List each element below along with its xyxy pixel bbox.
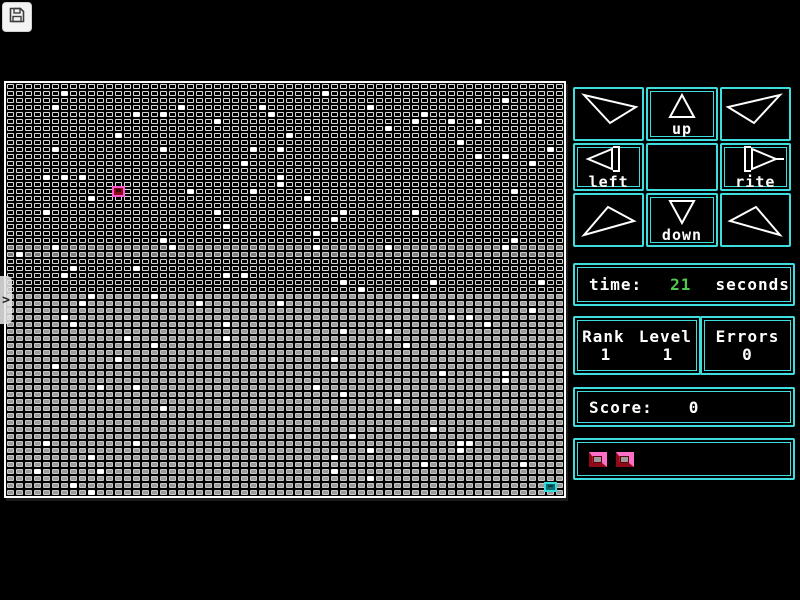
- grid-cell: [25, 280, 32, 285]
- grid-cell: [304, 490, 311, 495]
- grid-cell: [232, 329, 239, 334]
- grid-cell: [88, 294, 95, 299]
- grid-cell: [448, 175, 455, 180]
- grid-cell: [250, 175, 257, 180]
- grid-cell: [52, 175, 59, 180]
- grid-cell: [16, 161, 23, 166]
- grid-cell: [349, 434, 356, 439]
- grid-cell: [484, 329, 491, 334]
- grid-cell: [205, 469, 212, 474]
- dpad-down-left-button[interactable]: [573, 193, 644, 247]
- grid-cell: [133, 490, 140, 495]
- grid-cell: [124, 378, 131, 383]
- grid-cell: [304, 140, 311, 145]
- grid-cell: [349, 350, 356, 355]
- grid-cell: [322, 350, 329, 355]
- grid-cell: [394, 119, 401, 124]
- grid-cell: [196, 98, 203, 103]
- grid-cell: [349, 490, 356, 495]
- grid-cell: [187, 252, 194, 257]
- grid-cell: [79, 140, 86, 145]
- grid-cell: [61, 434, 68, 439]
- grid-cell: [520, 336, 527, 341]
- grid-cell: [79, 343, 86, 348]
- grid-cell: [439, 238, 446, 243]
- grid-cell: [232, 336, 239, 341]
- grid-cell: [214, 399, 221, 404]
- grid-cell: [250, 119, 257, 124]
- save-button[interactable]: [2, 2, 32, 32]
- grid-cell: [295, 378, 302, 383]
- grid-cell: [403, 147, 410, 152]
- grid-cell: [178, 350, 185, 355]
- grid-cell: [133, 357, 140, 362]
- grid-cell: [520, 203, 527, 208]
- grid-cell: [376, 427, 383, 432]
- grid-cell: [169, 322, 176, 327]
- grid-cell: [34, 252, 41, 257]
- grid-cell: [232, 168, 239, 173]
- dpad-up-button[interactable]: up: [646, 87, 717, 141]
- grid-cell: [115, 154, 122, 159]
- grid-cell: [286, 392, 293, 397]
- grid-cell: [106, 105, 113, 110]
- grid-cell: [403, 252, 410, 257]
- grid-cell: [502, 322, 509, 327]
- grid-cell: [313, 364, 320, 369]
- grid-cell: [295, 168, 302, 173]
- grid-cell: [196, 322, 203, 327]
- grid-cell: [412, 252, 419, 257]
- grid-cell: [214, 301, 221, 306]
- grid-cell: [250, 224, 257, 229]
- grid-cell: [493, 119, 500, 124]
- grid-cell: [403, 189, 410, 194]
- grid-cell: [187, 259, 194, 264]
- grid-cell: [340, 91, 347, 96]
- grid-cell: [160, 210, 167, 215]
- grid-cell: [160, 182, 167, 187]
- grid-cell: [43, 399, 50, 404]
- grid-cell: [394, 105, 401, 110]
- grid-cell: [106, 273, 113, 278]
- dpad-up-left-button[interactable]: [573, 87, 644, 141]
- dpad-up-right-button[interactable]: [720, 87, 791, 141]
- grid-cell: [358, 147, 365, 152]
- grid-cell: [304, 273, 311, 278]
- grid-cell: [25, 308, 32, 313]
- grid-cell: [331, 140, 338, 145]
- grid-cell: [79, 266, 86, 271]
- grid-cell: [160, 301, 167, 306]
- dpad-left-button[interactable]: left: [573, 143, 644, 191]
- grid-cell: [115, 406, 122, 411]
- grid-cell: [106, 427, 113, 432]
- grid-cell: [259, 294, 266, 299]
- grid-cell: [61, 91, 68, 96]
- grid-cell: [430, 364, 437, 369]
- grid-cell: [277, 84, 284, 89]
- grid-cell: [394, 154, 401, 159]
- grid-cell: [331, 231, 338, 236]
- grid-cell: [295, 308, 302, 313]
- grid-cell: [25, 147, 32, 152]
- grid-cell: [529, 287, 536, 292]
- grid-cell: [304, 126, 311, 131]
- grid-cell: [367, 259, 374, 264]
- grid-cell: [205, 140, 212, 145]
- grid-cell: [61, 392, 68, 397]
- grid-cell: [547, 119, 554, 124]
- grid-cell: [7, 259, 14, 264]
- grid-cell: [394, 343, 401, 348]
- grid-cell: [169, 448, 176, 453]
- grid-cell: [286, 455, 293, 460]
- grid-cell: [205, 98, 212, 103]
- grid-cell: [520, 98, 527, 103]
- grid-cell: [142, 406, 149, 411]
- grid-cell: [196, 385, 203, 390]
- grid-cell: [205, 343, 212, 348]
- grid-cell: [232, 112, 239, 117]
- grid-cell: [403, 119, 410, 124]
- grid-cell: [367, 476, 374, 481]
- grid-cell: [43, 168, 50, 173]
- grid-cell: [268, 210, 275, 215]
- grid-cell: [25, 84, 32, 89]
- grid-cell: [520, 252, 527, 257]
- grid-cell: [520, 448, 527, 453]
- grid-cell: [259, 119, 266, 124]
- grid-cell: [511, 448, 518, 453]
- grid-cell: [196, 231, 203, 236]
- grid-cell: [358, 196, 365, 201]
- grid-cell: [124, 189, 131, 194]
- grid-cell: [439, 378, 446, 383]
- grid-cell: [457, 441, 464, 446]
- grid-cell: [88, 273, 95, 278]
- grid-cell: [439, 112, 446, 117]
- grid-cell: [142, 308, 149, 313]
- grid-cell: [448, 259, 455, 264]
- grid-cell: [547, 175, 554, 180]
- grid-cell: [295, 98, 302, 103]
- grid-cell: [43, 392, 50, 397]
- grid-cell: [430, 301, 437, 306]
- grid-cell: [70, 420, 77, 425]
- dpad-down-right-button[interactable]: [720, 193, 791, 247]
- grid-cell: [43, 182, 50, 187]
- grid-cell: [448, 357, 455, 362]
- grid-cell: [187, 294, 194, 299]
- grid-cell: [439, 273, 446, 278]
- grid-cell: [511, 399, 518, 404]
- grid-cell: [232, 427, 239, 432]
- grid-cell: [97, 147, 104, 152]
- grid-cell: [430, 336, 437, 341]
- grid-cell: [250, 98, 257, 103]
- grid-cell: [538, 462, 545, 467]
- grid-cell: [277, 476, 284, 481]
- grid-cell: [475, 112, 482, 117]
- game-screen: { "colors": { "accent": "#3fdede", "text…: [0, 0, 800, 600]
- grid-cell: [304, 420, 311, 425]
- grid-cell: [97, 154, 104, 159]
- grid-cell: [322, 287, 329, 292]
- grid-cell: [385, 406, 392, 411]
- grid-cell: [331, 287, 338, 292]
- grid-cell: [466, 161, 473, 166]
- grid-cell: [232, 91, 239, 96]
- grid-cell: [169, 427, 176, 432]
- grid-cell: [403, 133, 410, 138]
- grid-cell: [34, 399, 41, 404]
- grid-cell: [277, 105, 284, 110]
- grid-cell: [520, 154, 527, 159]
- grid-cell: [223, 350, 230, 355]
- grid-cell: [385, 287, 392, 292]
- grid-cell: [34, 385, 41, 390]
- grid-cell: [322, 147, 329, 152]
- grid-cell: [394, 147, 401, 152]
- grid-cell: [358, 182, 365, 187]
- grid-cell: [97, 238, 104, 243]
- grid-cell: [97, 371, 104, 376]
- grid-cell: [466, 490, 473, 495]
- grid-cell: [205, 266, 212, 271]
- grid-cell: [16, 189, 23, 194]
- grid-cell: [268, 469, 275, 474]
- grid-cell: [205, 287, 212, 292]
- grid-cell: [16, 105, 23, 110]
- grid-cell: [313, 476, 320, 481]
- grid-cell: [88, 441, 95, 446]
- grid-cell: [61, 483, 68, 488]
- grid-cell: [70, 140, 77, 145]
- grid-cell: [268, 196, 275, 201]
- grid-cell: [520, 168, 527, 173]
- grid-cell: [97, 315, 104, 320]
- grid-cell: [223, 413, 230, 418]
- grid-cell: [142, 490, 149, 495]
- grid-cell: [547, 161, 554, 166]
- grid-cell: [358, 364, 365, 369]
- grid-cell: [538, 455, 545, 460]
- grid-cell: [70, 448, 77, 453]
- grid-cell: [97, 329, 104, 334]
- grid-cell: [151, 287, 158, 292]
- grid-cell: [304, 434, 311, 439]
- grid-cell: [304, 315, 311, 320]
- grid-cell: [367, 105, 374, 110]
- grid-cell: [52, 364, 59, 369]
- grid-cell: [205, 371, 212, 376]
- grid-cell: [556, 406, 563, 411]
- grid-cell: [241, 203, 248, 208]
- grid-cell: [16, 301, 23, 306]
- grid-cell: [421, 434, 428, 439]
- grid-cell: [169, 441, 176, 446]
- grid-cell: [475, 350, 482, 355]
- grid-cell: [556, 315, 563, 320]
- grid-cell: [187, 140, 194, 145]
- grid-cell: [439, 371, 446, 376]
- grid-cell: [259, 483, 266, 488]
- grid-cell: [52, 133, 59, 138]
- grid-cell: [466, 217, 473, 222]
- grid-cell: [466, 196, 473, 201]
- grid-cell: [160, 476, 167, 481]
- grid-cell: [241, 378, 248, 383]
- sidebar-expand-tab[interactable]: >: [0, 276, 12, 324]
- grid-cell: [430, 385, 437, 390]
- grid-cell: [169, 392, 176, 397]
- dpad-down-button[interactable]: down: [646, 193, 717, 247]
- grid-cell: [457, 147, 464, 152]
- grid-cell: [412, 273, 419, 278]
- grid-cell: [295, 315, 302, 320]
- grid-cell: [403, 322, 410, 327]
- grid-cell: [205, 273, 212, 278]
- grid-cell: [484, 455, 491, 460]
- grid-cell: [169, 84, 176, 89]
- grid-cell: [106, 413, 113, 418]
- grid-cell: [106, 280, 113, 285]
- grid-cell: [448, 322, 455, 327]
- grid-cell: [223, 490, 230, 495]
- grid-cell: [169, 168, 176, 173]
- grid-cell: [7, 245, 14, 250]
- grid-cell: [403, 273, 410, 278]
- level-label: Level: [639, 328, 692, 346]
- grid-cell: [331, 420, 338, 425]
- grid-cell: [286, 434, 293, 439]
- grid-cell: [133, 406, 140, 411]
- grid-cell: [412, 189, 419, 194]
- grid-cell: [214, 476, 221, 481]
- grid-cell: [358, 245, 365, 250]
- grid-cell: [70, 308, 77, 313]
- grid-cell: [52, 196, 59, 201]
- grid-cell: [313, 203, 320, 208]
- grid-cell: [331, 406, 338, 411]
- grid-cell: [502, 140, 509, 145]
- grid-cell: [313, 413, 320, 418]
- grid-cell: [349, 161, 356, 166]
- grid-cell: [367, 168, 374, 173]
- grid-cell: [205, 322, 212, 327]
- grid-cell: [412, 84, 419, 89]
- grid-cell: [151, 357, 158, 362]
- grid-cell: [25, 161, 32, 166]
- grid-cell: [178, 399, 185, 404]
- grid-cell: [61, 406, 68, 411]
- grid-cell: [142, 392, 149, 397]
- grid-cell: [169, 98, 176, 103]
- grid-cell: [349, 238, 356, 243]
- grid-cell: [34, 189, 41, 194]
- grid-cell: [520, 294, 527, 299]
- grid-cell: [385, 448, 392, 453]
- grid-cell: [43, 476, 50, 481]
- grid-cell: [106, 476, 113, 481]
- grid-cell: [547, 210, 554, 215]
- dpad-right-button[interactable]: rite: [720, 143, 791, 191]
- grid-cell: [529, 476, 536, 481]
- grid-cell: [115, 175, 122, 180]
- grid-cell: [115, 343, 122, 348]
- grid-cell: [484, 490, 491, 495]
- grid-cell: [259, 112, 266, 117]
- grid-cell: [160, 112, 167, 117]
- grid-cell: [448, 462, 455, 467]
- grid-cell: [259, 273, 266, 278]
- grid-cell: [16, 175, 23, 180]
- grid-cell: [7, 399, 14, 404]
- grid-cell: [457, 154, 464, 159]
- grid-cell: [16, 259, 23, 264]
- grid-cell: [538, 224, 545, 229]
- grid-cell: [250, 231, 257, 236]
- grid-cell: [241, 224, 248, 229]
- grid-cell: [421, 119, 428, 124]
- grid-cell: [25, 168, 32, 173]
- grid-cell: [205, 280, 212, 285]
- grid-cell: [439, 126, 446, 131]
- grid-cell: [547, 238, 554, 243]
- grid-cell: [178, 175, 185, 180]
- grid-cell: [547, 280, 554, 285]
- grid-cell: [439, 280, 446, 285]
- grid-cell: [367, 427, 374, 432]
- grid-cell: [97, 483, 104, 488]
- grid-cell: [16, 455, 23, 460]
- grid-cell: [493, 434, 500, 439]
- grid-cell: [358, 371, 365, 376]
- grid-cell: [358, 469, 365, 474]
- grid-cell: [412, 399, 419, 404]
- grid-cell: [349, 259, 356, 264]
- grid-cell: [205, 175, 212, 180]
- grid-cell: [475, 224, 482, 229]
- grid-cell: [358, 308, 365, 313]
- grid-cell: [358, 252, 365, 257]
- grid-cell: [43, 175, 50, 180]
- grid-cell: [124, 196, 131, 201]
- grid-cell: [322, 189, 329, 194]
- grid-cell: [340, 483, 347, 488]
- grid-cell: [160, 175, 167, 180]
- grid-cell: [241, 476, 248, 481]
- grid-cell: [484, 301, 491, 306]
- grid-cell: [250, 490, 257, 495]
- grid-cell: [295, 140, 302, 145]
- grid-cell: [25, 203, 32, 208]
- grid-cell: [340, 371, 347, 376]
- grid-cell: [70, 112, 77, 117]
- grid-cell: [277, 196, 284, 201]
- grid-cell: [385, 364, 392, 369]
- grid-cell: [376, 175, 383, 180]
- grid-cell: [367, 196, 374, 201]
- dpad-center-cell: [646, 143, 717, 191]
- grid-cell: [124, 490, 131, 495]
- grid-cell: [457, 448, 464, 453]
- grid-cell: [124, 406, 131, 411]
- grid-cell: [529, 364, 536, 369]
- grid-cell: [286, 91, 293, 96]
- grid-cell: [187, 231, 194, 236]
